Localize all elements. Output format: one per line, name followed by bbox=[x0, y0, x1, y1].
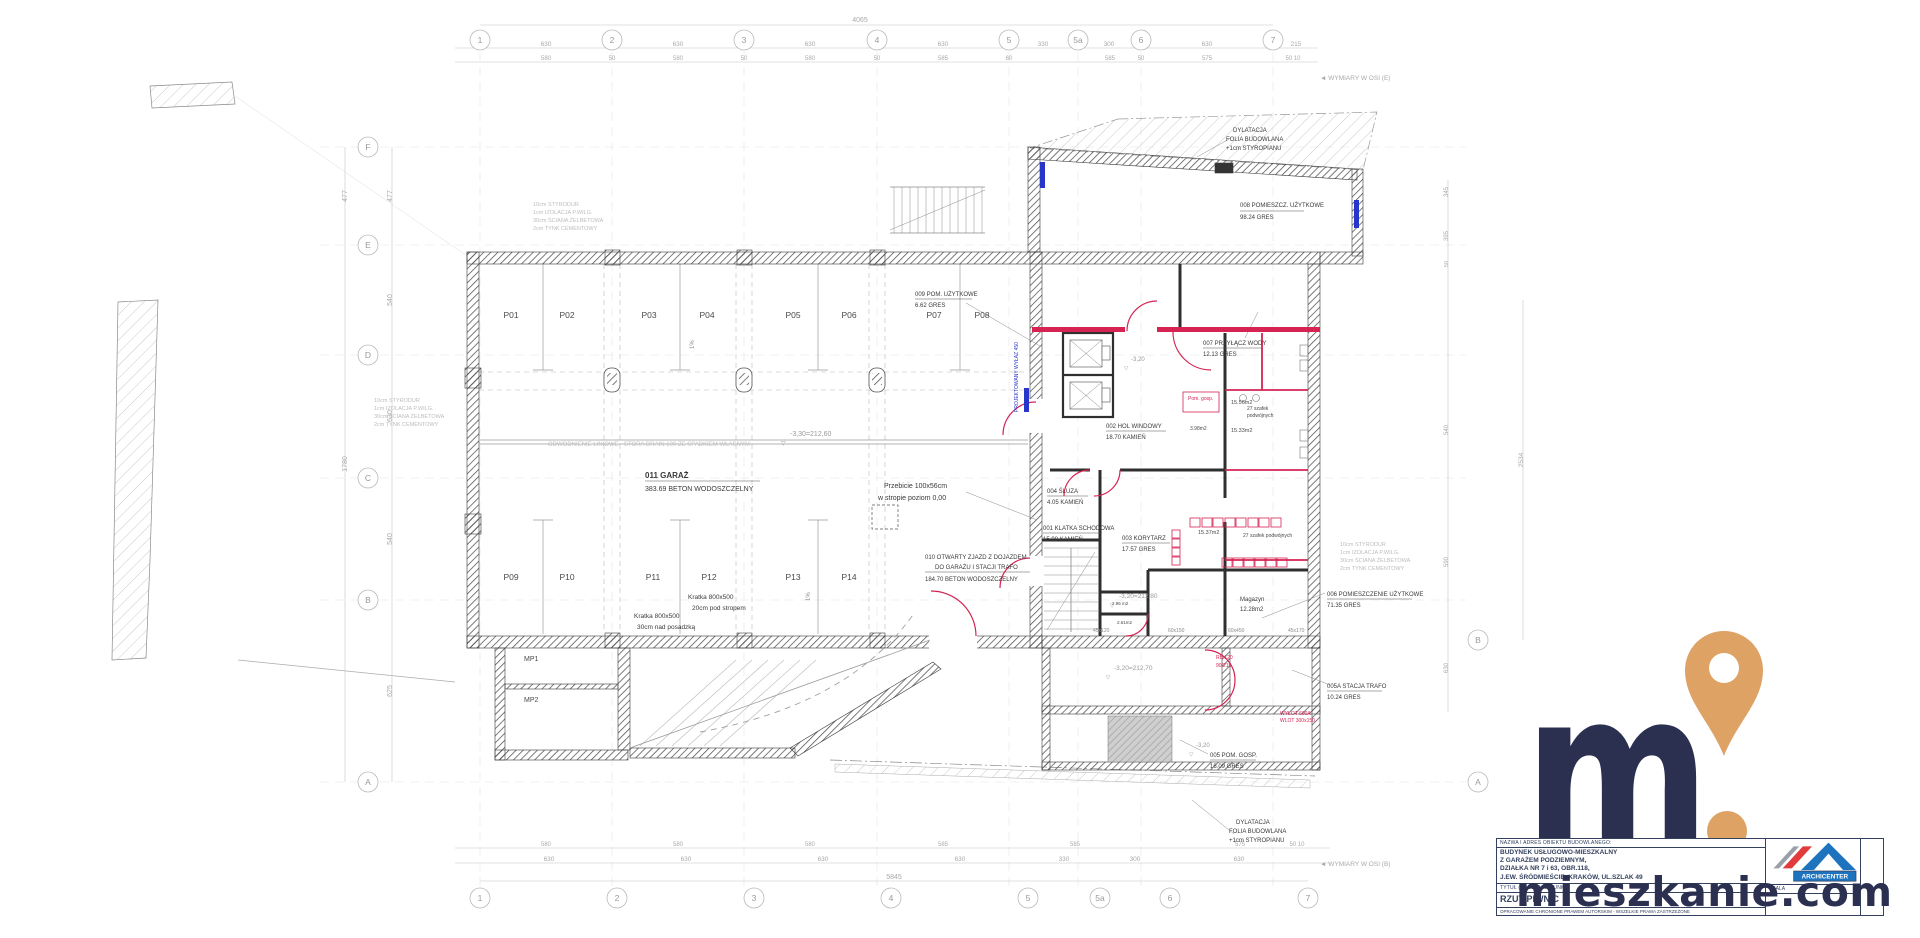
logo-wordmark-text: mieszkanie.com bbox=[1516, 868, 1893, 916]
blueprint-page: 123455a67123455a67FEDCBABA40656306306306… bbox=[0, 0, 1920, 938]
mieszkanie-wordmark: mieszkanie.com bbox=[0, 0, 1920, 938]
